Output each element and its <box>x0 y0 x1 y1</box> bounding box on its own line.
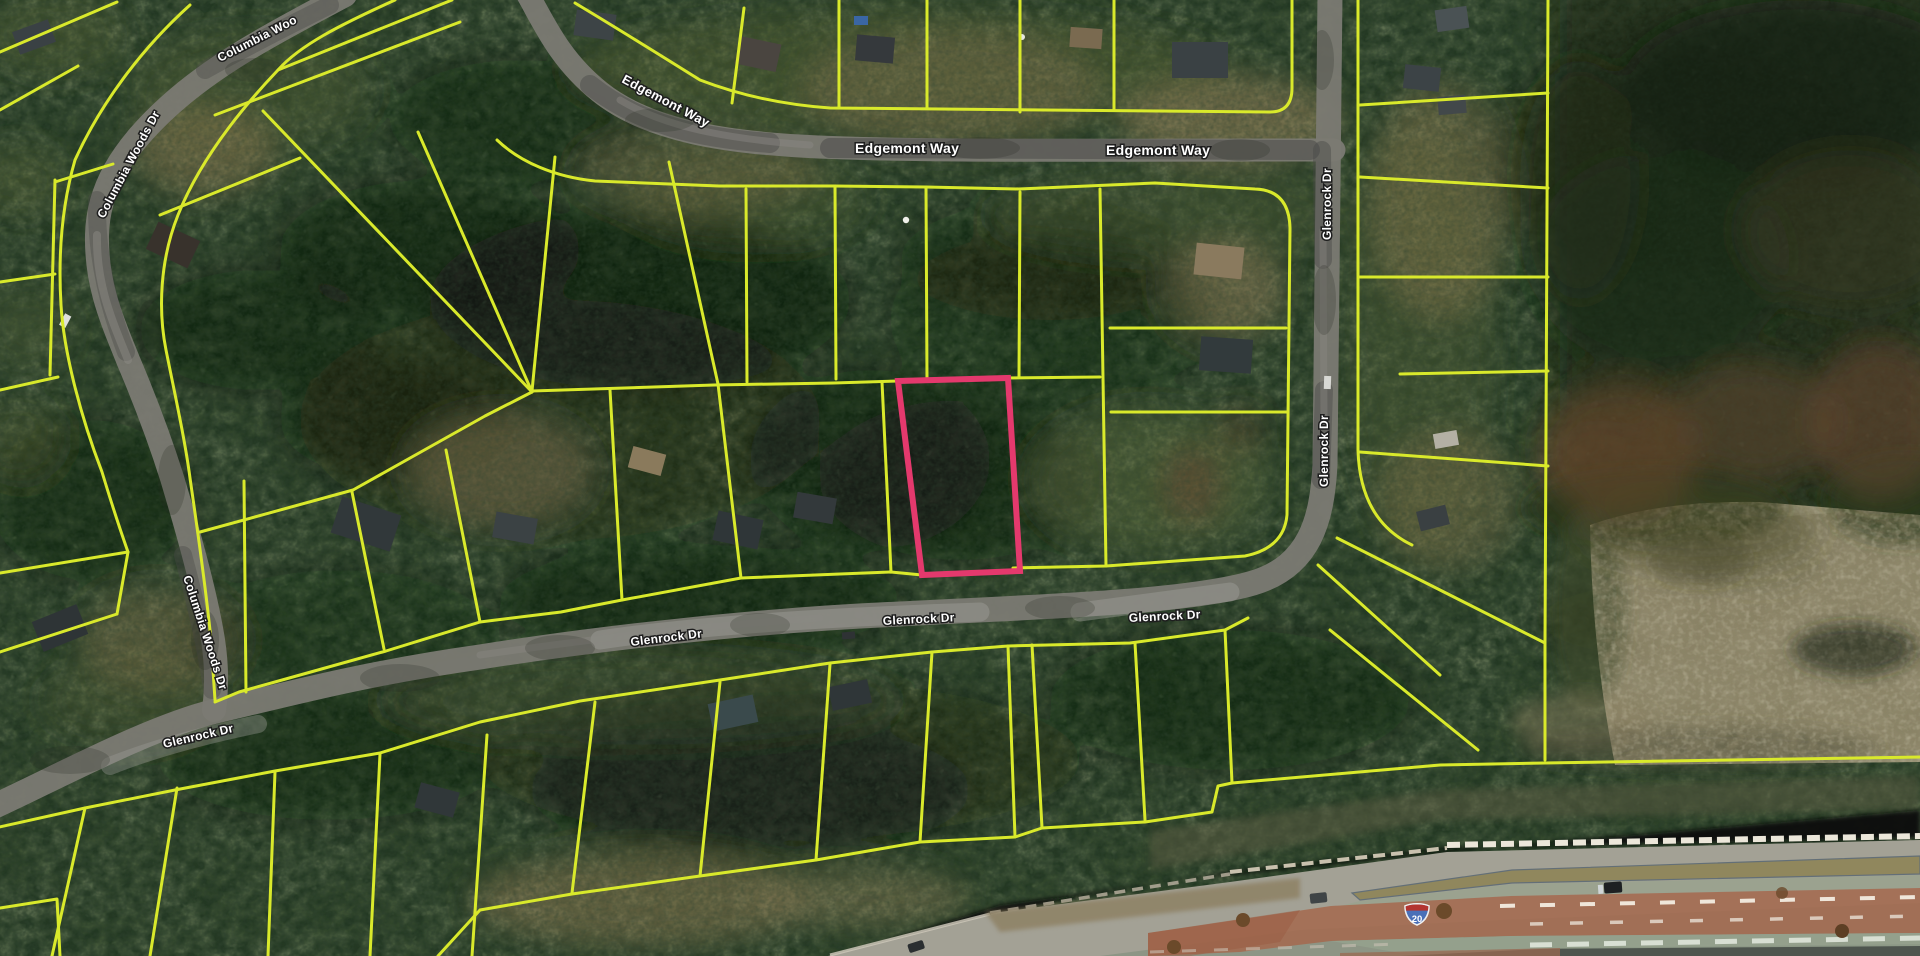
svg-text:Edgemont Way: Edgemont Way <box>855 140 959 156</box>
svg-text:20: 20 <box>1412 914 1423 925</box>
svg-text:Glenrock Dr: Glenrock Dr <box>1320 168 1334 240</box>
svg-text:Glenrock Dr: Glenrock Dr <box>1317 415 1331 487</box>
svg-text:Edgemont Way: Edgemont Way <box>1106 142 1210 158</box>
